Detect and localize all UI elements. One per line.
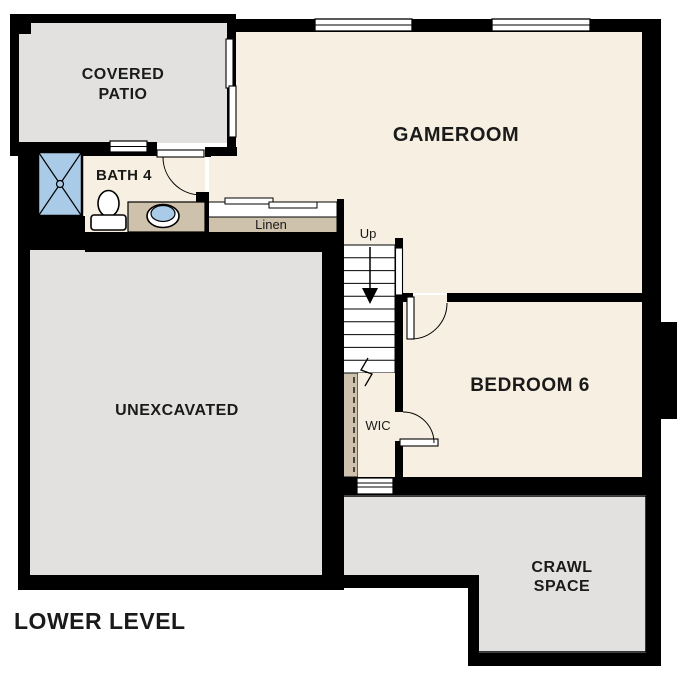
wall-right-bump [661,322,677,419]
hall-floor [209,156,237,202]
wic-label: WIC [365,418,390,433]
wall-crawl-bottom [468,653,661,666]
wic-door-gap [395,412,403,441]
window-icon [492,19,590,31]
linen-label: Linen [255,217,287,232]
stairs-up-label: Up [360,226,377,241]
unexcavated-label: UNEXCAVATED [115,402,239,419]
wall-patio-post [19,23,31,34]
wall-patio-left [10,14,19,154]
stair-railing [396,248,403,295]
shower-icon [38,152,82,216]
window-icon [110,141,147,152]
wall-stair-left [322,238,344,590]
wall-main-right-lower [646,478,661,666]
bath4-label: BATH 4 [96,167,152,184]
floor-plan: COVERED PATIO GAMEROOM BATH 4 Linen Up U… [0,0,687,687]
crawl-space-floor [335,496,646,652]
wall-crawl-step [322,575,479,588]
wall-linen-right [337,199,344,237]
covered-patio-floor [19,23,227,143]
wall-patio-top [10,14,236,23]
wall-main-right-upper [642,19,661,478]
wall-crawl-left [468,575,479,666]
plan-title: LOWER LEVEL [14,608,186,634]
wall-bathdoor-stub [205,147,211,157]
gameroom-label: GAMEROOM [393,124,519,146]
window-icon [315,19,412,31]
wall-stair-rail-stub [395,238,403,248]
wall-bath-north [211,147,237,156]
wall-stair-right-upper [395,295,403,412]
floor-plan-canvas: COVERED PATIO GAMEROOM BATH 4 Linen Up U… [0,0,687,687]
wall-main-top [228,19,661,32]
bedroom6-label: BEDROOM 6 [470,375,590,396]
wall-bedroom-top [447,293,644,302]
wall-unexcavated-bottom [18,575,335,590]
vanity-sink-icon [128,202,205,232]
wall-band-below-bath [85,232,344,252]
crawl-access-icon [357,478,393,494]
crawl-space-label-1: CRAWL [531,559,592,576]
wall-shower-below [18,216,85,250]
covered-patio-label-2: PATIO [98,86,147,103]
crawl-space-label-2: SPACE [534,578,590,595]
covered-patio-label-1: COVERED [82,66,165,83]
